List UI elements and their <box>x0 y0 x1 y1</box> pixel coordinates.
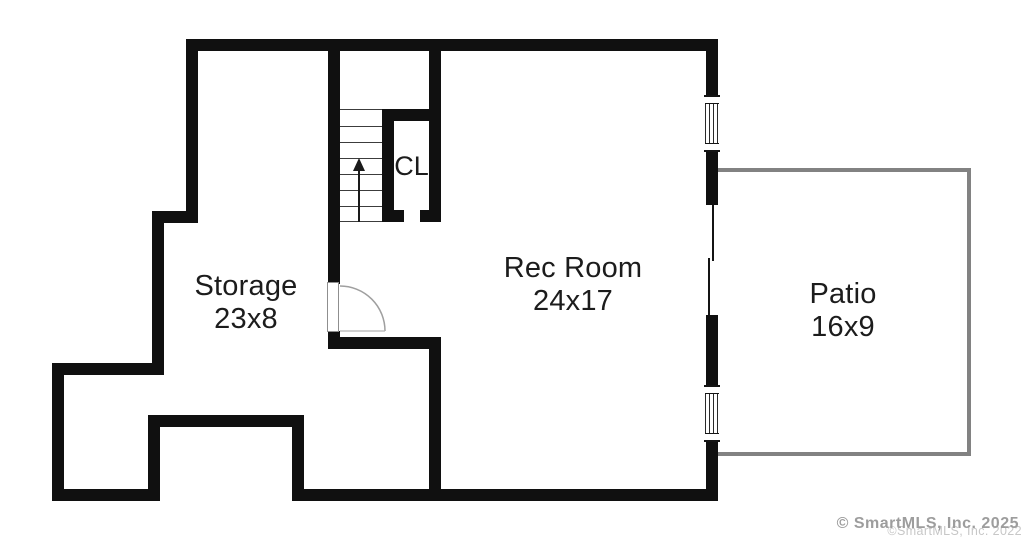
wall-bottom-left <box>52 489 160 501</box>
patio-label: Patio 16x9 <box>738 278 948 344</box>
rec-room-label: Rec Room 24x17 <box>468 252 678 318</box>
window-panes <box>705 393 719 434</box>
wall-notch-left <box>148 415 160 501</box>
stair-tread <box>340 142 382 143</box>
stairs-up-arrow-shaft <box>358 171 360 222</box>
sliding-door-panel <box>708 258 710 315</box>
window-panes <box>705 103 719 144</box>
wall-notch-top <box>148 415 304 427</box>
wall-recroom-left-lower <box>429 337 441 489</box>
sliding-door-panel <box>712 205 714 261</box>
wall-top-exterior <box>186 39 718 51</box>
floorplan-canvas: Storage 23x8 Rec Room 24x17 Patio 16x9 C… <box>0 0 1024 539</box>
stair-tread <box>340 126 382 127</box>
wall-storage-right <box>328 51 340 284</box>
rec-room-dims: 24x17 <box>468 285 678 318</box>
wall-closet-bottom-left <box>382 210 404 222</box>
stairs-up-arrow-icon <box>353 158 365 171</box>
storage-dims: 23x8 <box>141 303 351 336</box>
patio-name: Patio <box>809 278 876 310</box>
wall-right-seg3 <box>706 315 718 385</box>
stair-tread <box>340 221 382 222</box>
stair-tread <box>340 109 382 110</box>
rec-room-name: Rec Room <box>504 252 643 284</box>
wall-right-seg1 <box>706 51 718 95</box>
wall-right-seg2 <box>706 152 718 205</box>
stair-tread <box>340 190 382 191</box>
storage-label: Storage 23x8 <box>141 270 351 336</box>
storage-name: Storage <box>195 270 298 302</box>
wall-right-seg4 <box>706 442 718 489</box>
patio-dims: 16x9 <box>738 311 948 344</box>
wall-bottom-main <box>292 489 718 501</box>
stair-tread <box>340 174 382 175</box>
window-upper <box>704 95 720 152</box>
wall-left-lower <box>52 363 64 501</box>
wall-left-step-lower <box>52 363 164 375</box>
wall-closet-bottom-right <box>420 210 441 222</box>
watermark-primary: © SmartMLS, Inc. 2025 <box>837 515 1019 533</box>
stair-tread <box>340 206 382 207</box>
closet-label: CL <box>383 153 440 180</box>
wall-left-upper <box>186 39 198 223</box>
wall-recroom-left-upper <box>429 51 441 222</box>
wall-below-door <box>328 337 441 349</box>
